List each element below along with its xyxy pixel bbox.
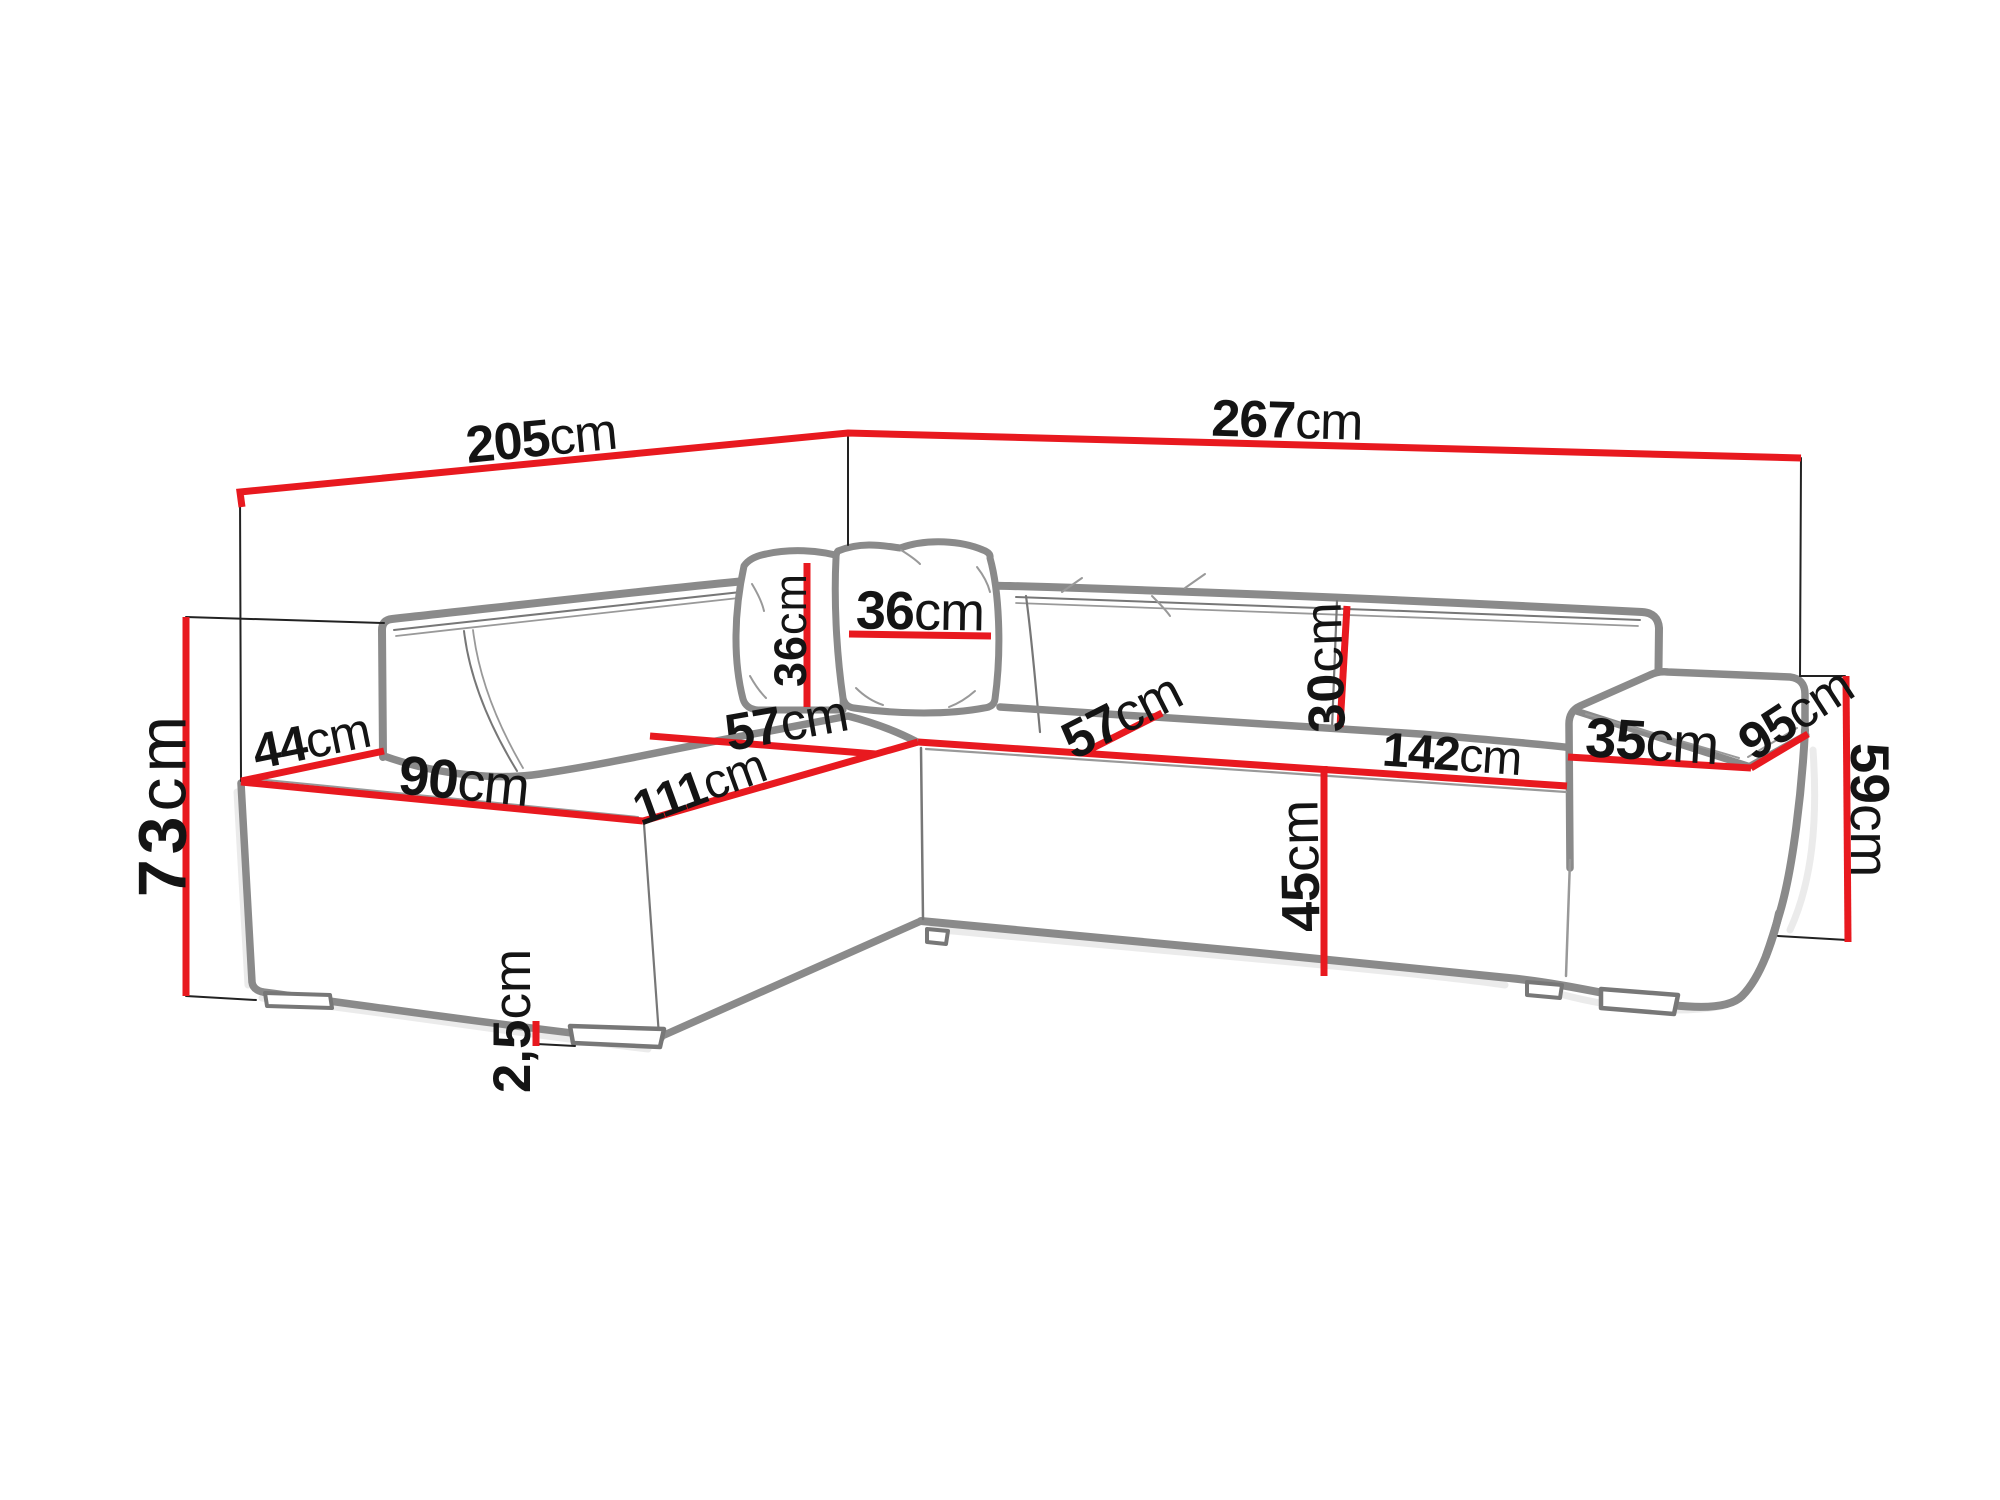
svg-text:2,5cm: 2,5cm [483, 949, 542, 1093]
svg-text:35cm: 35cm [1584, 705, 1721, 776]
svg-text:30cm: 30cm [1294, 600, 1357, 733]
svg-text:142cm: 142cm [1381, 723, 1523, 786]
svg-text:73cm: 73cm [124, 711, 200, 897]
svg-text:45cm: 45cm [1269, 799, 1331, 932]
svg-text:36cm: 36cm [855, 580, 984, 642]
svg-text:36cm: 36cm [765, 573, 816, 687]
svg-text:59cm: 59cm [1839, 743, 1901, 878]
svg-text:267cm: 267cm [1211, 390, 1364, 452]
svg-text:90cm: 90cm [396, 743, 532, 818]
